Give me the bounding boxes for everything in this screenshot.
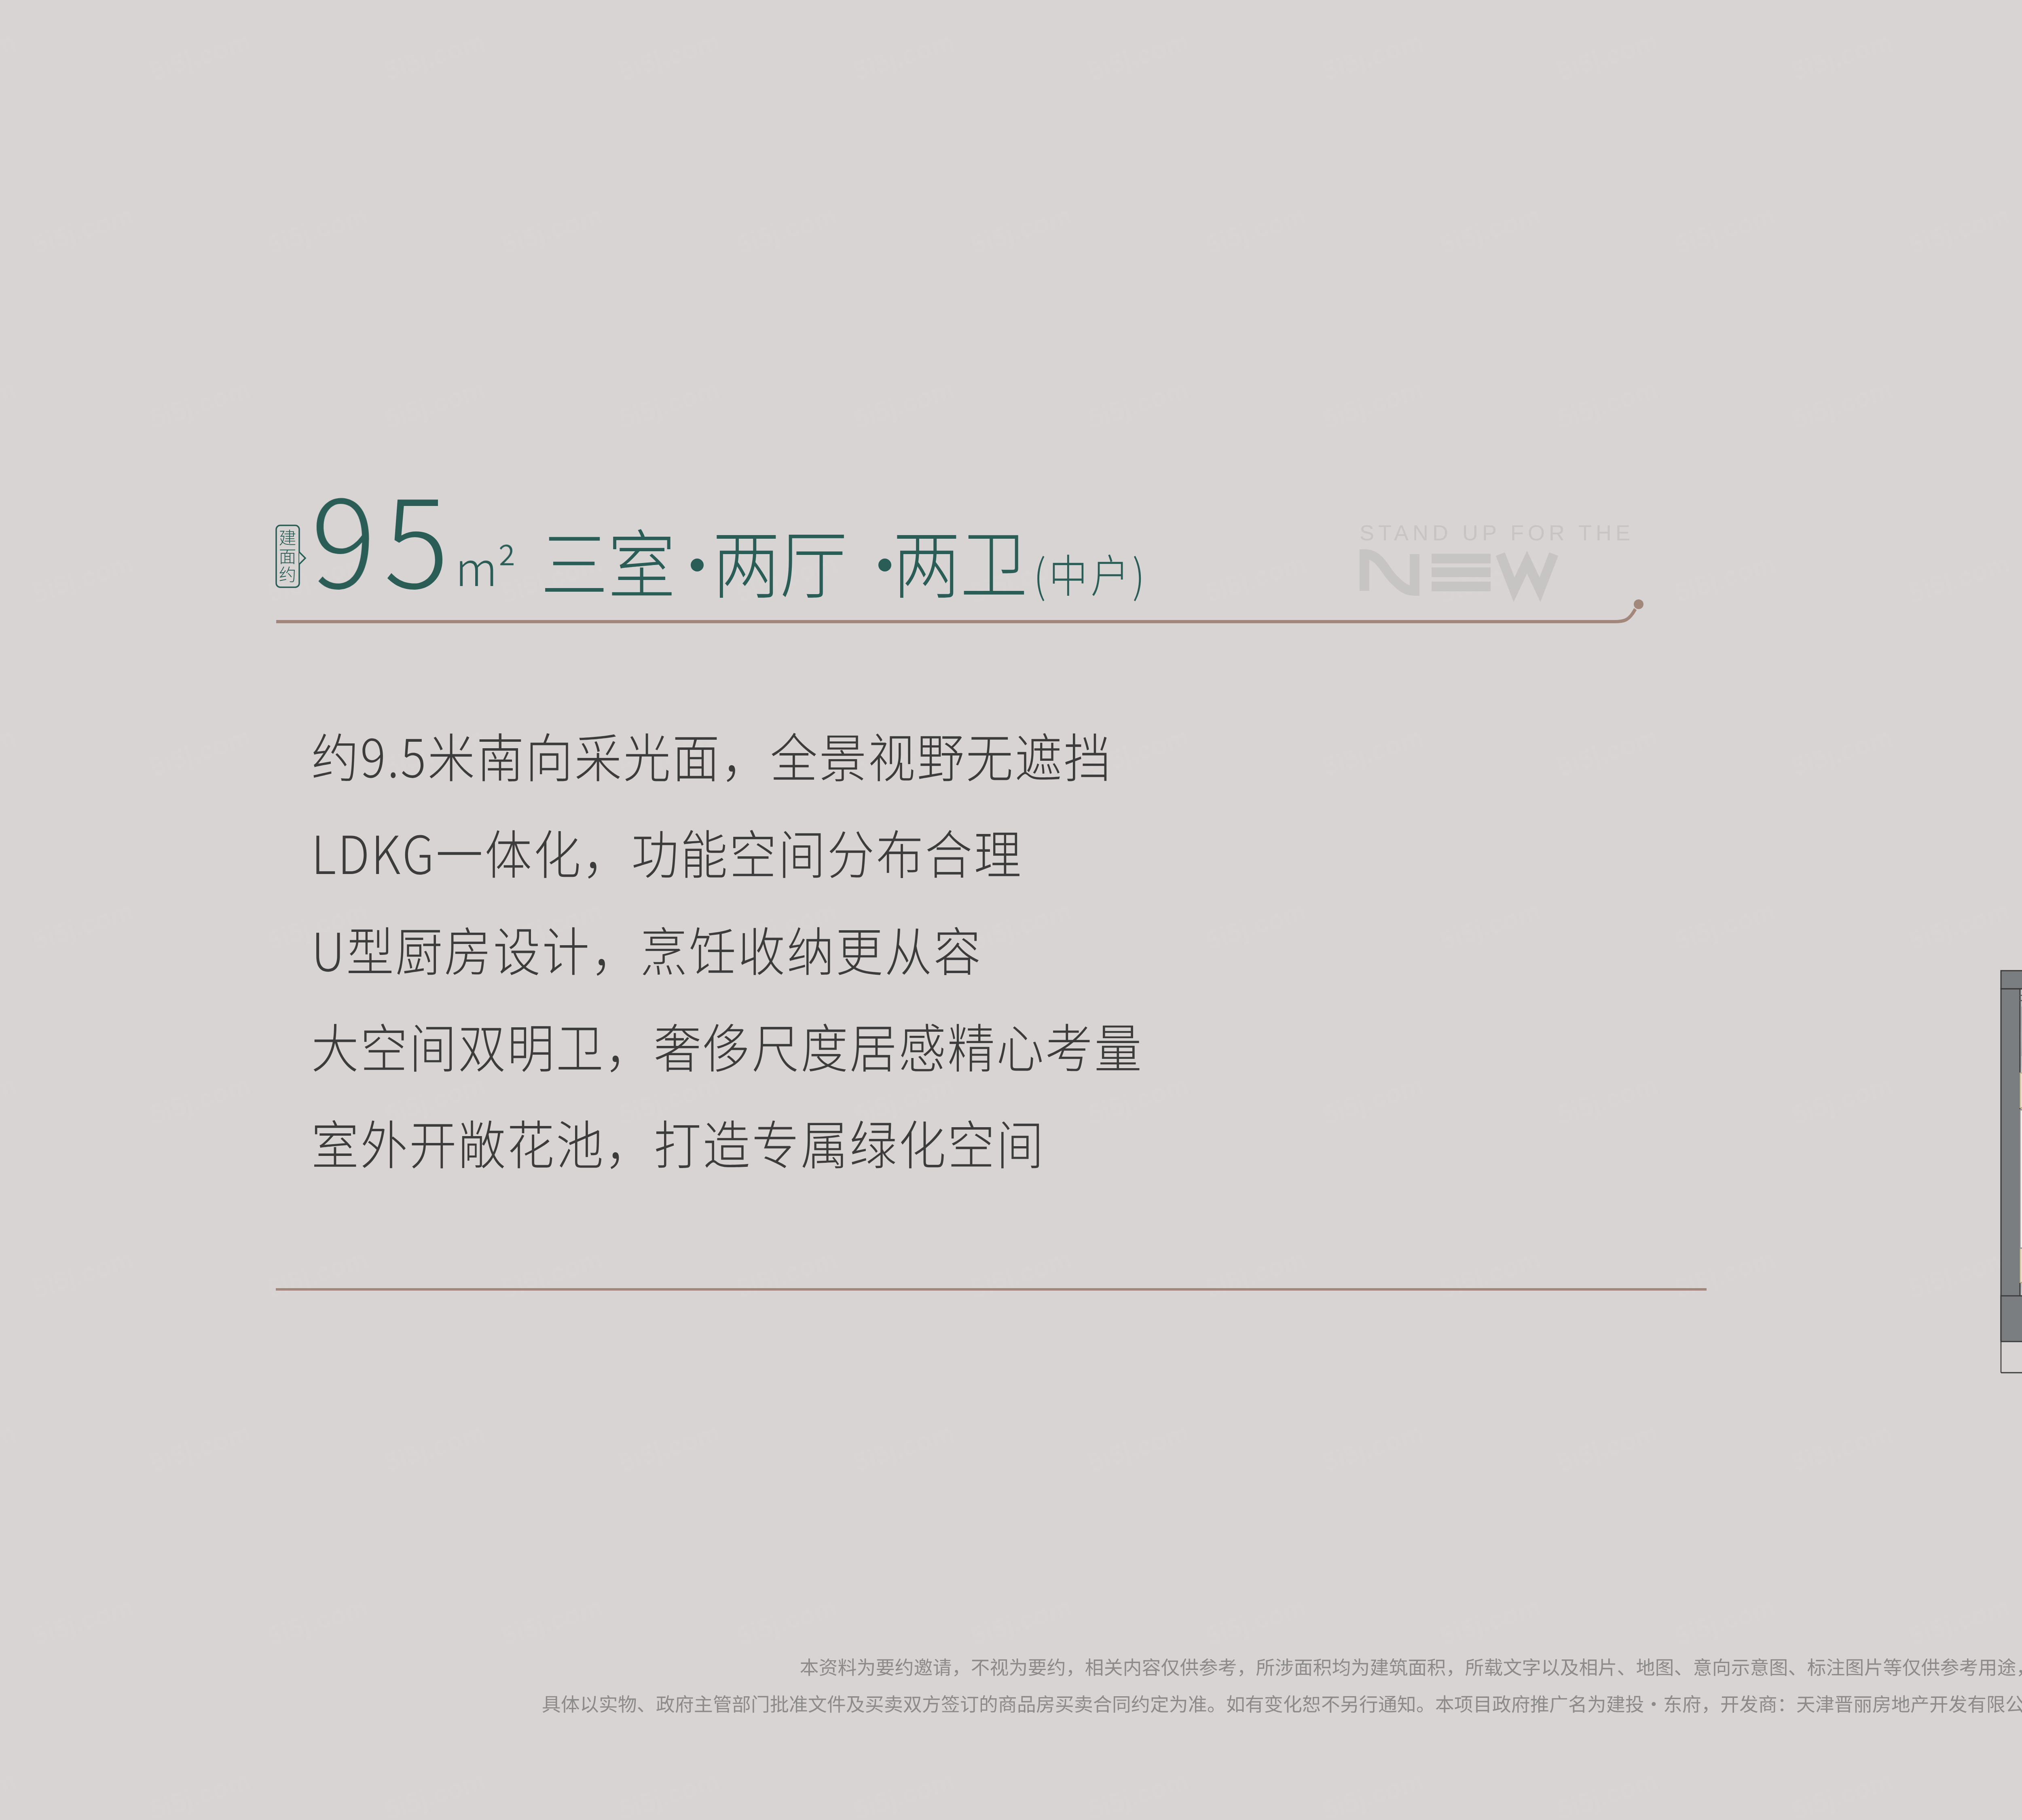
svg-text:STAND UP FOR THE: STAND UP FOR THE xyxy=(1360,521,1634,545)
